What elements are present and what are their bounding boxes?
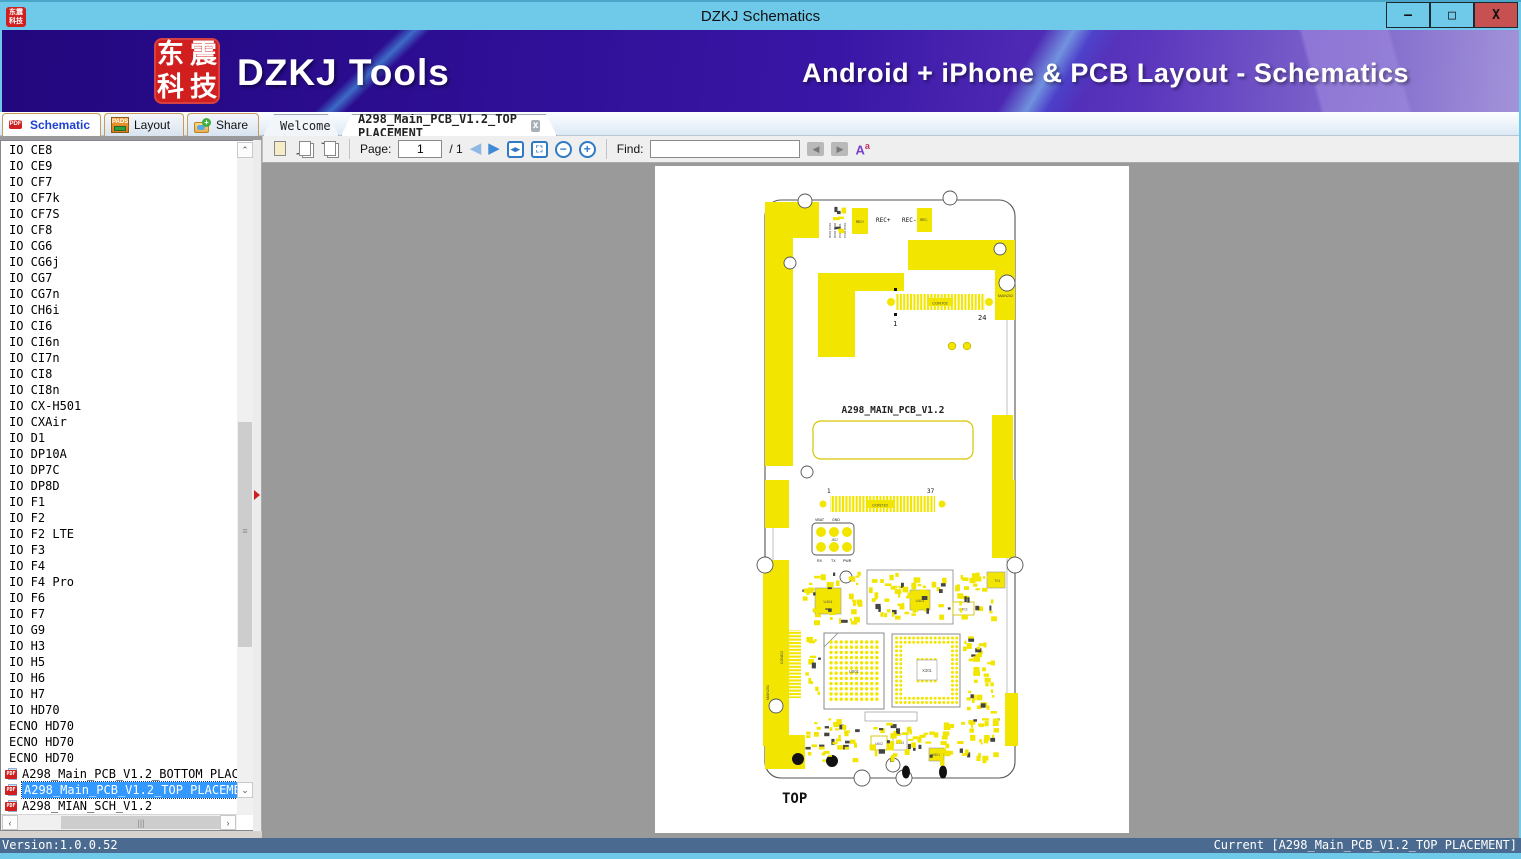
bga-pad xyxy=(870,672,873,675)
list-item-label: IO F2 xyxy=(9,510,45,526)
document-viewport[interactable]: REC+ REC+ REC- REC- R601 C601R602 C602 C… xyxy=(262,163,1521,838)
bga-pad xyxy=(955,658,958,661)
component-pad xyxy=(884,613,887,617)
bga-pad xyxy=(895,688,898,691)
model-list-item[interactable]: IO F3 xyxy=(1,542,237,558)
scroll-left-icon[interactable]: ‹ xyxy=(2,815,18,830)
list-item-label: IO H5 xyxy=(9,654,45,670)
battery-connector-outline xyxy=(813,421,973,459)
component-pad xyxy=(920,735,925,738)
component-pad xyxy=(841,620,848,623)
bga-pad xyxy=(955,654,958,657)
model-list-item[interactable]: IO CE9 xyxy=(1,158,237,174)
bga-pad xyxy=(840,677,843,680)
bga-pad xyxy=(955,649,958,652)
bga-pad xyxy=(925,637,928,640)
component-pad xyxy=(926,608,929,614)
component-pad xyxy=(974,680,978,683)
model-list-item[interactable]: IO CI7n xyxy=(1,350,237,366)
model-list-sidebar: IO CE8IO CE9IO CF7IO CF7kIO CF7SIO CF8IO… xyxy=(0,140,253,831)
list-item-label: IO F4 Pro xyxy=(9,574,74,590)
component-pad xyxy=(941,758,944,762)
model-list-item[interactable]: IO DP10A xyxy=(1,446,237,462)
model-list-item[interactable]: IO CH6i xyxy=(1,302,237,318)
bga-pad xyxy=(829,656,832,659)
component-pad xyxy=(814,722,817,724)
find-input[interactable] xyxy=(650,140,800,158)
svg-text:CON710: CON710 xyxy=(872,503,888,508)
component-pad xyxy=(941,583,946,586)
model-list-item[interactable]: IO CG7n xyxy=(1,286,237,302)
fit-page-icon[interactable]: ⛶ xyxy=(531,141,548,158)
bga-pad xyxy=(829,666,832,669)
component-pad xyxy=(817,727,821,730)
bga-pad xyxy=(845,661,848,664)
bga-pad xyxy=(875,666,878,669)
model-list-item[interactable]: IO H6 xyxy=(1,670,237,686)
pcb-placement-drawing: REC+ REC+ REC- REC- R601 C601R602 C602 C… xyxy=(655,166,1129,833)
component-pad xyxy=(896,740,901,744)
bga-pad xyxy=(850,698,853,701)
model-list-item[interactable]: IO CF7S xyxy=(1,206,237,222)
bga-pad xyxy=(840,651,843,654)
copy-page-icon[interactable]: ⤴ xyxy=(296,140,314,158)
component-pad xyxy=(806,735,810,738)
status-bar: Version:1.0.0.52 Current [A298_Main_PCB_… xyxy=(0,838,1521,853)
model-list-item[interactable]: IO F6 xyxy=(1,590,237,606)
component-pad xyxy=(853,758,859,762)
component-pad xyxy=(870,744,877,750)
component-pad xyxy=(850,740,856,744)
component-pad xyxy=(902,732,908,735)
bga-pad xyxy=(840,661,843,664)
component-pad xyxy=(993,721,999,726)
bga-pad xyxy=(955,680,958,683)
component-pad xyxy=(911,614,916,616)
model-list-item[interactable]: IO CXAir xyxy=(1,414,237,430)
model-list: IO CE8IO CE9IO CF7IO CF7kIO CF7SIO CF8IO… xyxy=(1,142,237,815)
component-pad xyxy=(825,726,829,728)
maximize-button[interactable]: □ xyxy=(1430,2,1474,28)
component-pad xyxy=(990,738,995,742)
component-pad xyxy=(984,642,987,647)
model-list-item[interactable]: IO CG7 xyxy=(1,270,237,286)
bga-pad xyxy=(834,646,837,649)
tab-close-icon[interactable]: x xyxy=(531,120,540,132)
component-pad xyxy=(924,733,929,735)
sidebar-footer-strip xyxy=(0,831,262,838)
bga-pad xyxy=(860,672,863,675)
model-list-item[interactable]: IO CE8 xyxy=(1,142,237,158)
bga-pad xyxy=(834,672,837,675)
bga-pad xyxy=(855,661,858,664)
list-item-label: IO F4 xyxy=(9,558,45,574)
component-pad xyxy=(962,577,968,581)
bga-pad xyxy=(904,637,907,640)
svg-text:R601 C601: R601 C601 xyxy=(828,222,832,238)
component-pad xyxy=(809,583,813,585)
close-button[interactable]: X xyxy=(1474,2,1518,28)
bga-pad xyxy=(951,658,954,661)
fit-width-icon[interactable]: ◂▸ xyxy=(507,141,524,158)
model-list-item[interactable]: IO CI8 xyxy=(1,366,237,382)
bga-pad xyxy=(834,687,837,690)
bga-pad xyxy=(908,697,911,700)
component-pad xyxy=(910,601,913,604)
bga-pad xyxy=(845,651,848,654)
model-list-item[interactable]: IO CG6j xyxy=(1,254,237,270)
model-list-item[interactable]: IO F1 xyxy=(1,494,237,510)
bga-pad xyxy=(834,661,837,664)
component-pad xyxy=(968,639,974,642)
component-pad xyxy=(976,756,980,761)
model-list-item[interactable]: IO F4 Pro xyxy=(1,574,237,590)
bga-pad xyxy=(829,692,832,695)
bga-pad xyxy=(934,637,937,640)
bga-pad xyxy=(899,692,902,695)
bga-pad xyxy=(955,697,958,700)
list-item-label: IO CI8n xyxy=(9,382,60,398)
list-item-label: IO F3 xyxy=(9,542,45,558)
list-item-label: ECNO HD70 xyxy=(9,718,74,734)
bga-pad xyxy=(860,661,863,664)
bga-pad xyxy=(929,697,932,700)
chip-u403: U403 xyxy=(953,602,974,615)
component-pad xyxy=(932,582,937,588)
svg-text:J802: J802 xyxy=(831,538,838,542)
component-pad xyxy=(890,741,894,746)
bga-pad xyxy=(908,641,911,644)
bga-pad xyxy=(925,701,928,704)
component-pad xyxy=(908,593,911,599)
page-input[interactable] xyxy=(398,140,442,158)
bga-pad xyxy=(875,656,878,659)
bga-pad xyxy=(875,651,878,654)
component-pad xyxy=(805,672,809,675)
model-list-item[interactable]: IO CF7k xyxy=(1,190,237,206)
bga-pad xyxy=(938,701,941,704)
title-bar: 东震科技 DZKJ Schematics – □ X xyxy=(0,0,1521,30)
list-item-label: IO CF7 xyxy=(9,174,52,190)
component-pad xyxy=(910,730,912,735)
bga-pad xyxy=(895,697,898,700)
component-pad xyxy=(856,576,860,578)
svg-text:24: 24 xyxy=(978,314,986,322)
component-pad xyxy=(957,741,963,744)
scroll-down-icon[interactable]: ⌄ xyxy=(237,782,253,798)
sidebar-splitter[interactable] xyxy=(253,140,262,831)
bga-pad xyxy=(951,675,954,678)
bga-pad xyxy=(951,671,954,674)
brand-title: DZKJ Tools xyxy=(237,52,450,94)
model-list-item[interactable]: IO CF7 xyxy=(1,174,237,190)
bga-pad xyxy=(834,656,837,659)
tab-welcome[interactable]: Welcome xyxy=(263,114,339,136)
match-case-icon[interactable]: Aa xyxy=(855,141,869,157)
model-list-item[interactable]: IO CF8 xyxy=(1,222,237,238)
bga-pad xyxy=(834,692,837,695)
bga-pad xyxy=(875,682,878,685)
component-pad xyxy=(829,612,836,615)
bga-pad xyxy=(955,645,958,648)
component-pad xyxy=(976,695,982,701)
bga-pad xyxy=(840,692,843,695)
bga-pad xyxy=(845,672,848,675)
find-next-icon[interactable]: ▶ xyxy=(831,142,848,156)
component-pad xyxy=(814,620,820,625)
bga-pad xyxy=(929,637,932,640)
component-pad xyxy=(981,725,984,727)
bga-pad xyxy=(875,640,878,643)
list-item-label: A298_Main_PCB_V1.2_BOTTOM PLACEMENT xyxy=(22,766,237,782)
component-pad xyxy=(824,733,829,737)
model-list-item[interactable]: IO F4 xyxy=(1,558,237,574)
bga-pad xyxy=(951,662,954,665)
component-pad xyxy=(923,586,926,589)
scroll-right-icon[interactable]: › xyxy=(220,815,236,830)
bga-pad xyxy=(951,667,954,670)
bga-pad xyxy=(870,698,873,701)
model-list-item[interactable]: IO DP7C xyxy=(1,462,237,478)
component-pad xyxy=(837,745,843,750)
svg-text:U403: U403 xyxy=(958,608,967,612)
sidebar-vertical-scrollbar[interactable]: ⌃ ≡ ⌄ xyxy=(237,142,253,815)
bga-pad xyxy=(912,637,915,640)
pdf-file-icon: PDF xyxy=(5,800,18,813)
model-list-item[interactable]: IO CI8n xyxy=(1,382,237,398)
bga-pad xyxy=(860,656,863,659)
component-pad xyxy=(991,661,995,666)
model-list-item[interactable]: IO D1 xyxy=(1,430,237,446)
component-pad xyxy=(945,744,949,749)
component-pad xyxy=(948,607,951,609)
bga-pad xyxy=(870,640,873,643)
model-list-item[interactable]: IO F2 xyxy=(1,510,237,526)
bga-pad xyxy=(955,662,958,665)
bga-pad xyxy=(899,667,902,670)
bga-pad xyxy=(895,701,898,704)
bga-pad xyxy=(845,656,848,659)
component-pad xyxy=(981,742,983,744)
component-pad xyxy=(931,749,934,754)
component-pad xyxy=(875,751,878,757)
component-pad xyxy=(964,586,969,590)
bga-pad xyxy=(860,666,863,669)
component-pad xyxy=(961,615,968,620)
bga-pad xyxy=(829,646,832,649)
model-list-item[interactable]: IO F2 LTE xyxy=(1,526,237,542)
bga-pad xyxy=(925,697,928,700)
list-item-label: IO CG6 xyxy=(9,238,52,254)
sidebar-horizontal-scrollbar[interactable]: ‹ ||| › xyxy=(1,814,237,830)
bga-pad xyxy=(875,677,878,680)
zoom-in-icon[interactable]: + xyxy=(579,141,596,158)
export-page-icon[interactable] xyxy=(271,140,289,158)
vertical-scroll-thumb[interactable]: ≡ xyxy=(238,422,252,647)
bga-pad xyxy=(942,701,945,704)
bga-pad xyxy=(840,687,843,690)
model-list-item[interactable]: ECNO HD70 xyxy=(1,718,237,734)
component-pad xyxy=(971,694,974,698)
scroll-up-icon[interactable]: ⌃ xyxy=(237,142,253,158)
component-pad xyxy=(982,718,989,720)
bga-pad xyxy=(840,656,843,659)
bga-pad xyxy=(845,677,848,680)
list-item-label: IO CF8 xyxy=(9,222,52,238)
bga-pad xyxy=(899,675,902,678)
bga-pad xyxy=(899,680,902,683)
model-list-item[interactable]: IO H3 xyxy=(1,638,237,654)
bga-pad xyxy=(942,697,945,700)
bga-pad xyxy=(947,641,950,644)
model-list-item[interactable]: IO DP8D xyxy=(1,478,237,494)
zoom-out-icon[interactable]: − xyxy=(555,141,572,158)
list-item-label: IO F7 xyxy=(9,606,45,622)
model-list-item[interactable]: IO F7 xyxy=(1,606,237,622)
prev-page-icon[interactable]: ◀ xyxy=(470,140,482,158)
tab-layout[interactable]: PADS Layout xyxy=(104,113,184,136)
component-pad xyxy=(853,601,856,607)
model-list-item[interactable]: ECNO HD70 xyxy=(1,734,237,750)
list-item-label: IO CE8 xyxy=(9,142,52,158)
bga-pad xyxy=(895,675,898,678)
bga-pad xyxy=(899,697,902,700)
bga-pad xyxy=(875,687,878,690)
component-pad xyxy=(845,747,850,750)
component-pad xyxy=(911,742,916,747)
component-pad xyxy=(830,727,833,731)
list-item-label: IO F1 xyxy=(9,494,45,510)
component-pad xyxy=(886,723,893,726)
model-list-item[interactable]: ECNO HD70 xyxy=(1,750,237,766)
bga-pad xyxy=(895,662,898,665)
component-pad xyxy=(889,575,893,580)
list-item-label: IO G9 xyxy=(9,622,45,638)
bga-pad xyxy=(829,677,832,680)
component-pad xyxy=(884,599,889,602)
component-pad xyxy=(982,756,988,761)
model-list-item[interactable]: IO CI6 xyxy=(1,318,237,334)
bga-pad xyxy=(870,677,873,680)
bga-pad xyxy=(921,641,924,644)
document-list-item[interactable]: PDFA298_MIAN_SCH_V1.2 xyxy=(1,798,237,814)
bga-pad xyxy=(904,641,907,644)
model-list-item[interactable]: IO H5 xyxy=(1,654,237,670)
component-pad xyxy=(813,592,816,595)
component-pad xyxy=(816,610,818,614)
model-list-item[interactable]: IO CI6n xyxy=(1,334,237,350)
component-pad xyxy=(875,592,879,598)
document-list-item[interactable]: PDFA298_Main_PCB_V1.2_BOTTOM PLACEMENT xyxy=(1,766,237,782)
list-item-label: IO CG6j xyxy=(9,254,60,270)
component-pad xyxy=(835,597,837,600)
component-pad xyxy=(808,752,812,756)
bga-pad xyxy=(845,687,848,690)
bga-pad xyxy=(917,637,920,640)
component-pad xyxy=(858,601,863,607)
bga-pad xyxy=(875,646,878,649)
list-item-label: IO F2 LTE xyxy=(9,526,74,542)
model-list-item[interactable]: IO H7 xyxy=(1,686,237,702)
bga-pad xyxy=(829,661,832,664)
component-pad xyxy=(837,211,841,214)
component-pad xyxy=(974,667,980,672)
minimize-button[interactable]: – xyxy=(1386,2,1430,28)
component-pad xyxy=(833,573,835,577)
component-pad xyxy=(828,755,832,757)
bga-pad xyxy=(955,637,958,640)
component-pad xyxy=(813,608,816,612)
component-pad xyxy=(939,615,944,620)
component-pad xyxy=(973,584,977,587)
document-list-item[interactable]: PDFA298_Main_PCB_V1.2_TOP PLACEMENT xyxy=(1,782,237,798)
svg-text:CON802: CON802 xyxy=(780,651,784,664)
list-item-label: IO CI6n xyxy=(9,334,60,350)
component-pad xyxy=(903,587,909,593)
component-pad xyxy=(850,618,852,621)
copy-page-alt-icon[interactable]: ⤵ xyxy=(321,140,339,158)
model-list-item[interactable]: IO G9 xyxy=(1,622,237,638)
component-pad xyxy=(830,617,833,620)
horizontal-scroll-thumb[interactable]: ||| xyxy=(61,816,221,829)
model-list-item[interactable]: IO HD70 xyxy=(1,702,237,718)
bga-pad xyxy=(899,641,902,644)
component-pad xyxy=(838,229,843,233)
tab-placement-document[interactable]: A298_Main_PCB_V1.2_TOP PLACEMENT x xyxy=(341,114,557,136)
tab-schematic[interactable]: PDF Schematic xyxy=(2,113,101,136)
bga-pad xyxy=(895,684,898,687)
bga-pad xyxy=(904,701,907,704)
bga-pad xyxy=(829,651,832,654)
find-previous-icon[interactable]: ◀ xyxy=(807,142,824,156)
bga-pad xyxy=(955,692,958,695)
bga-pad xyxy=(951,654,954,657)
bga-pad xyxy=(870,651,873,654)
bga-pad xyxy=(908,701,911,704)
component-pad xyxy=(810,681,813,684)
component-pad xyxy=(806,747,811,750)
bga-pad xyxy=(860,677,863,680)
component-pad xyxy=(971,725,973,728)
bga-pad xyxy=(895,680,898,683)
tab-share[interactable]: + Share xyxy=(187,113,259,136)
bga-pad xyxy=(855,677,858,680)
component-pad xyxy=(804,588,810,592)
bga-pad xyxy=(904,697,907,700)
bga-pad xyxy=(899,688,902,691)
list-item-label: IO DP10A xyxy=(9,446,67,462)
bga-pad xyxy=(865,692,868,695)
bga-pad xyxy=(934,701,937,704)
bga-pad xyxy=(860,682,863,685)
bga-pad xyxy=(951,680,954,683)
component-pad xyxy=(973,719,977,721)
list-item-label: IO CI8 xyxy=(9,366,52,382)
bga-pad xyxy=(834,651,837,654)
model-list-item[interactable]: IO CG6 xyxy=(1,238,237,254)
next-page-icon[interactable]: ▶ xyxy=(488,140,500,158)
collapse-sidebar-icon[interactable] xyxy=(254,490,260,500)
component-pad xyxy=(964,641,966,644)
component-pad xyxy=(844,730,850,732)
component-pad xyxy=(818,658,821,660)
bga-pad xyxy=(860,640,863,643)
model-list-item[interactable]: IO CX-H501 xyxy=(1,398,237,414)
component-pad xyxy=(982,667,986,671)
component-pad xyxy=(913,748,916,751)
bga-pad xyxy=(860,687,863,690)
bga-pad xyxy=(834,666,837,669)
